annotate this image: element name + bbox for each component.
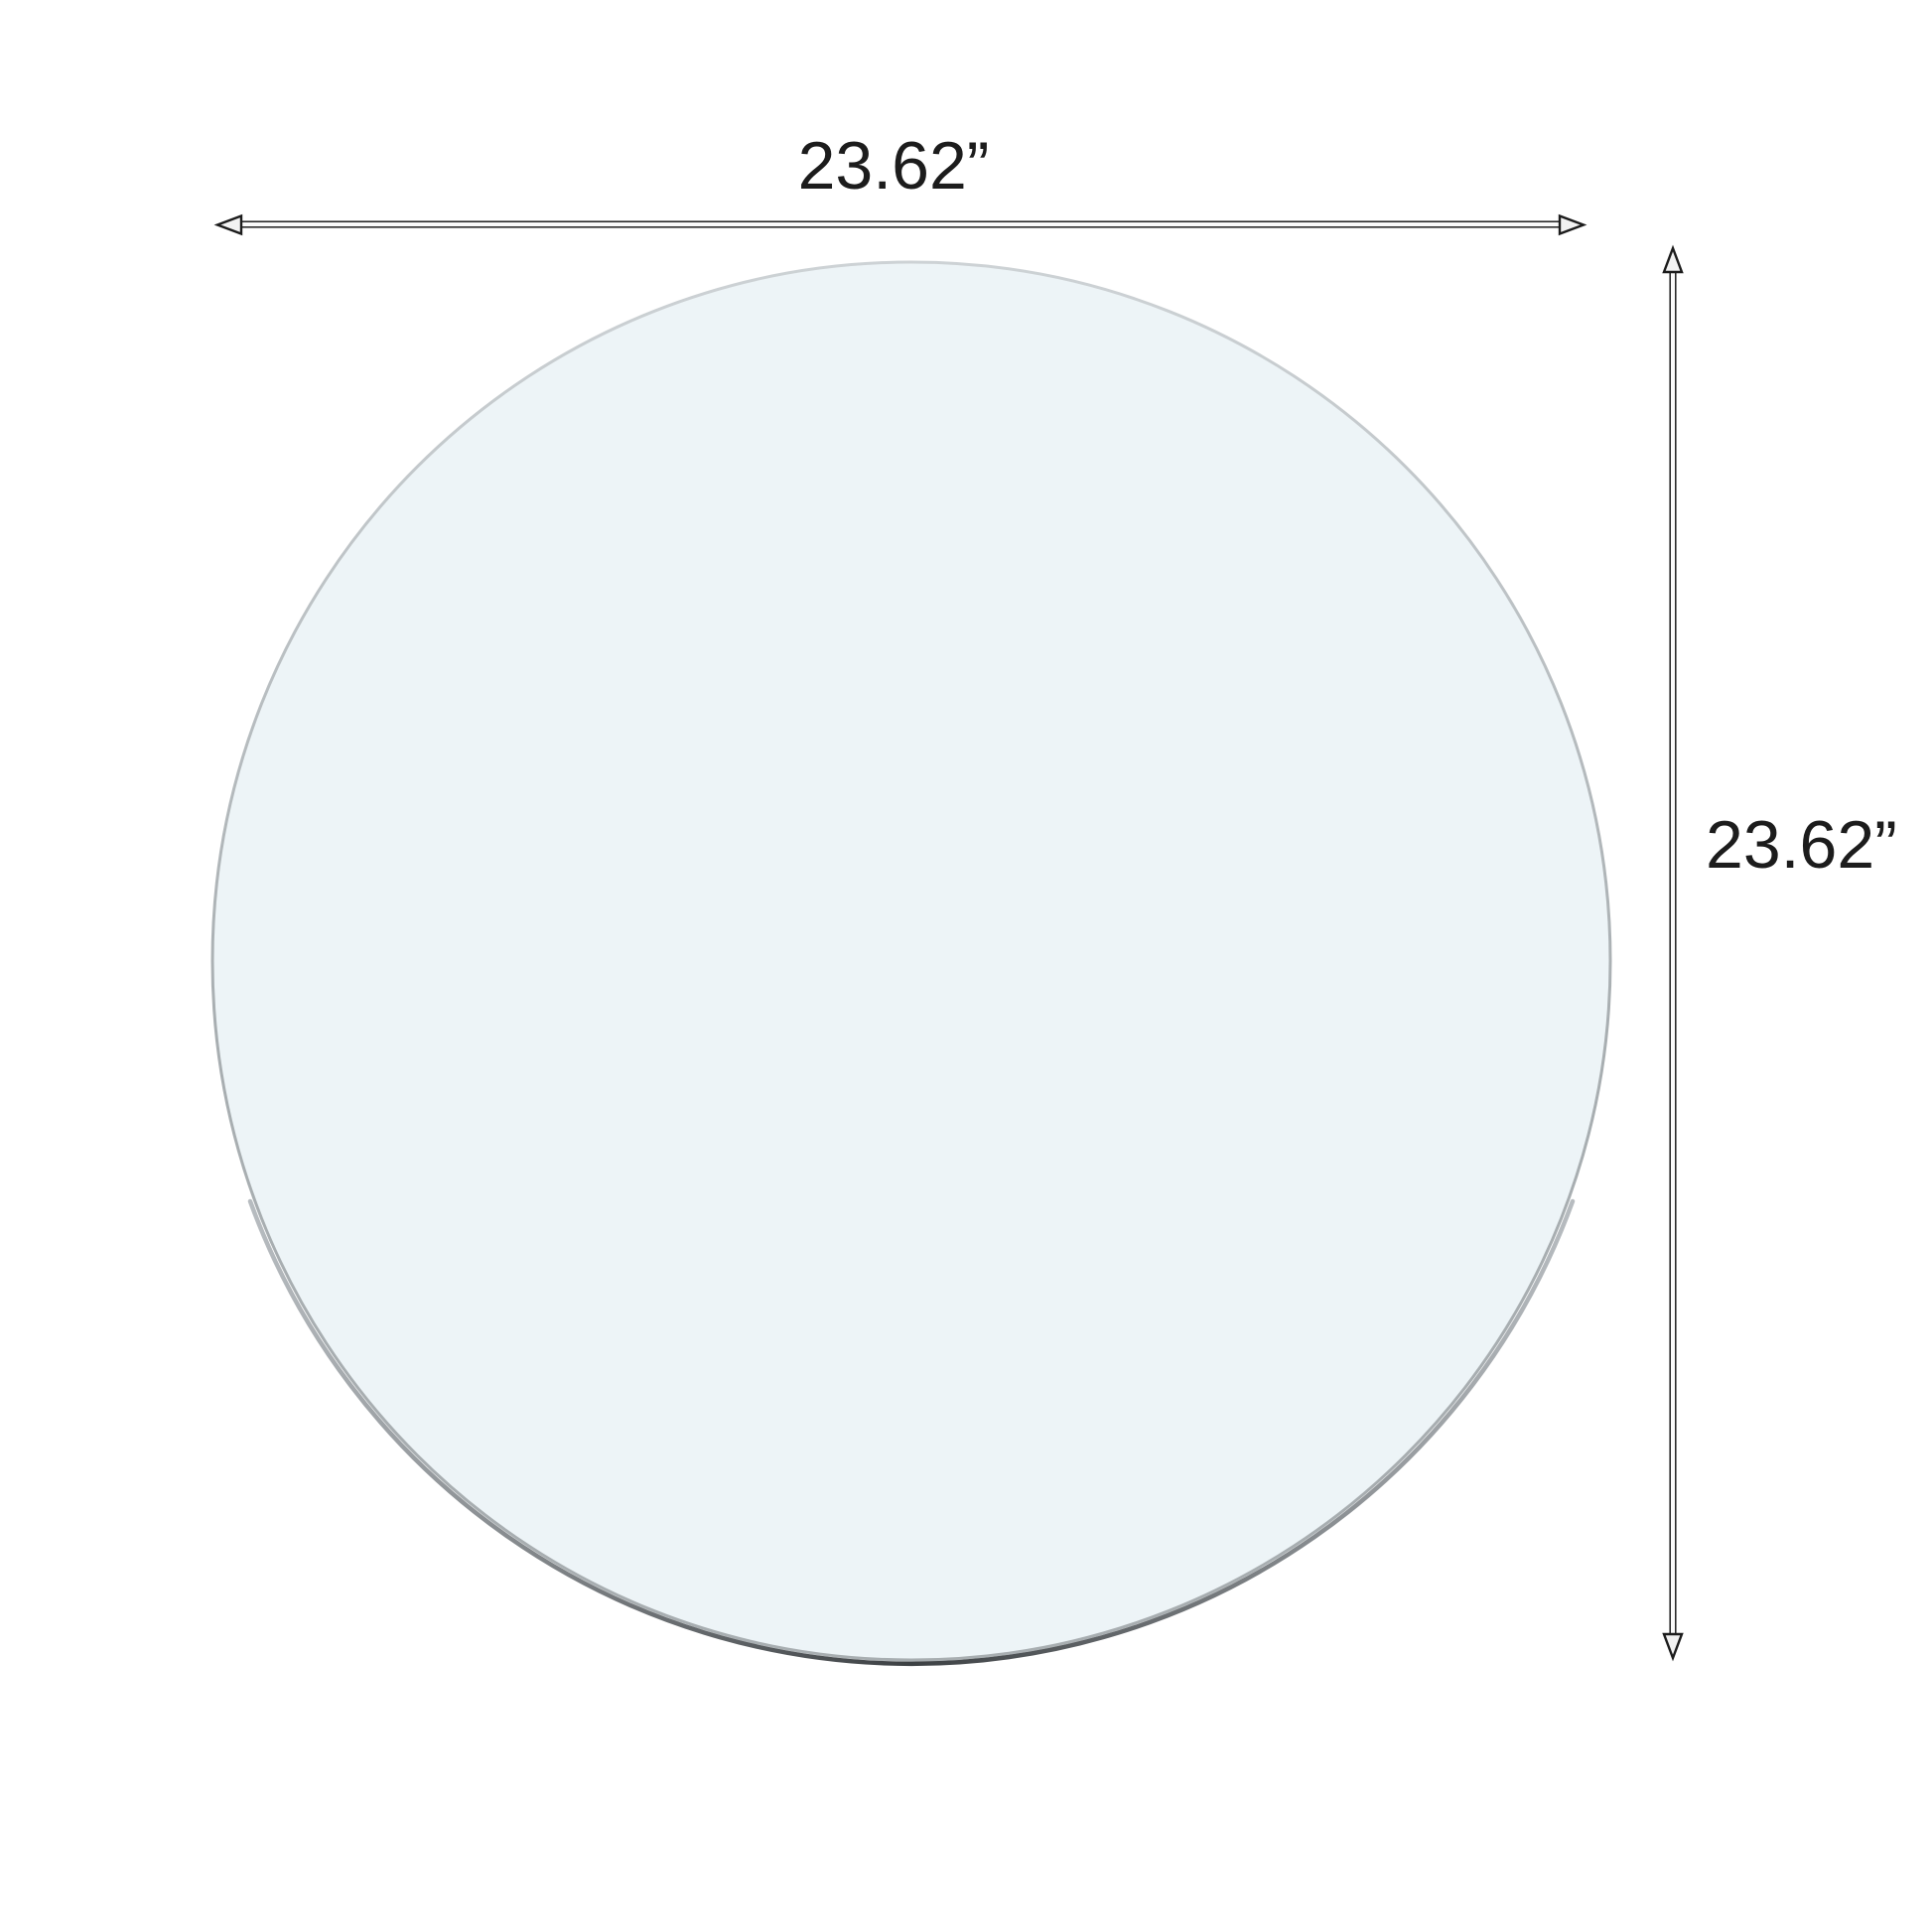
width-dimension-label: 23.62” [695, 132, 1092, 200]
width-dimension-line [238, 221, 1563, 227]
height-arrow-top-icon [1664, 248, 1682, 272]
glass-tabletop [212, 262, 1610, 1660]
height-arrow-bottom-icon [1664, 1634, 1682, 1658]
diagram-canvas [0, 0, 1932, 1932]
height-dimension-line [1670, 268, 1676, 1638]
width-arrow-left-icon [217, 216, 241, 234]
dimension-diagram: 23.62” 23.62” [0, 0, 1932, 1932]
width-arrow-right-icon [1560, 216, 1584, 234]
height-dimension-label: 23.62” [1706, 811, 1897, 879]
